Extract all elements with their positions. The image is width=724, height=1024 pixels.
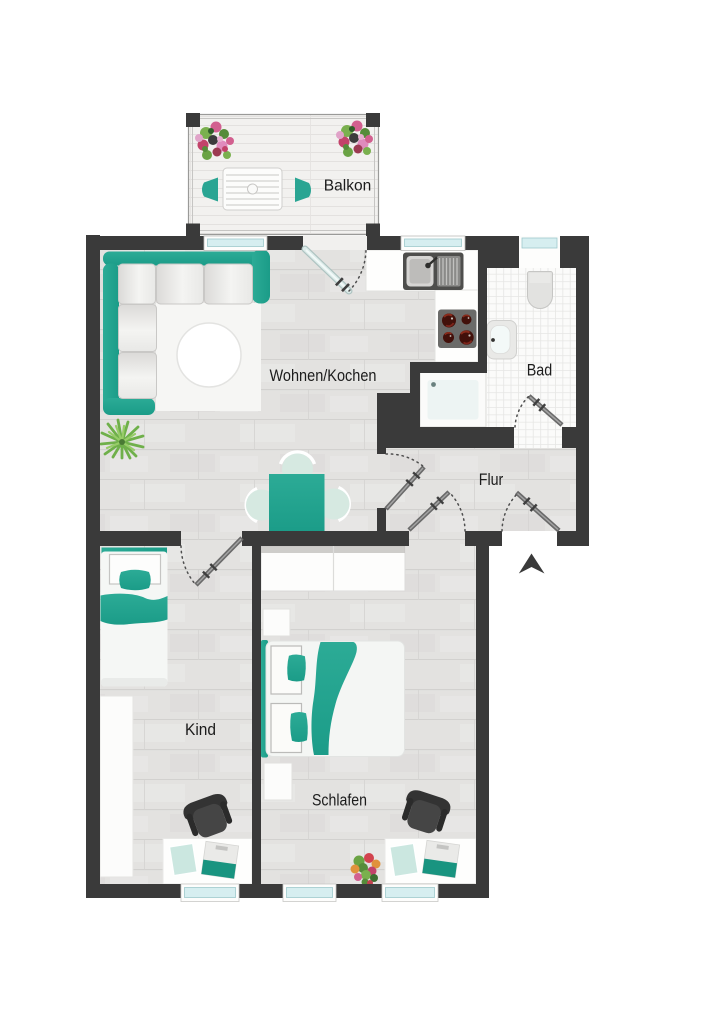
svg-text:Wohnen/Kochen: Wohnen/Kochen — [270, 366, 377, 385]
svg-text:Balkon: Balkon — [324, 178, 372, 195]
svg-text:Kind: Kind — [185, 720, 216, 739]
svg-text:Flur: Flur — [479, 470, 504, 489]
svg-text:Bad: Bad — [527, 361, 553, 380]
svg-text:Schlafen: Schlafen — [312, 791, 367, 810]
